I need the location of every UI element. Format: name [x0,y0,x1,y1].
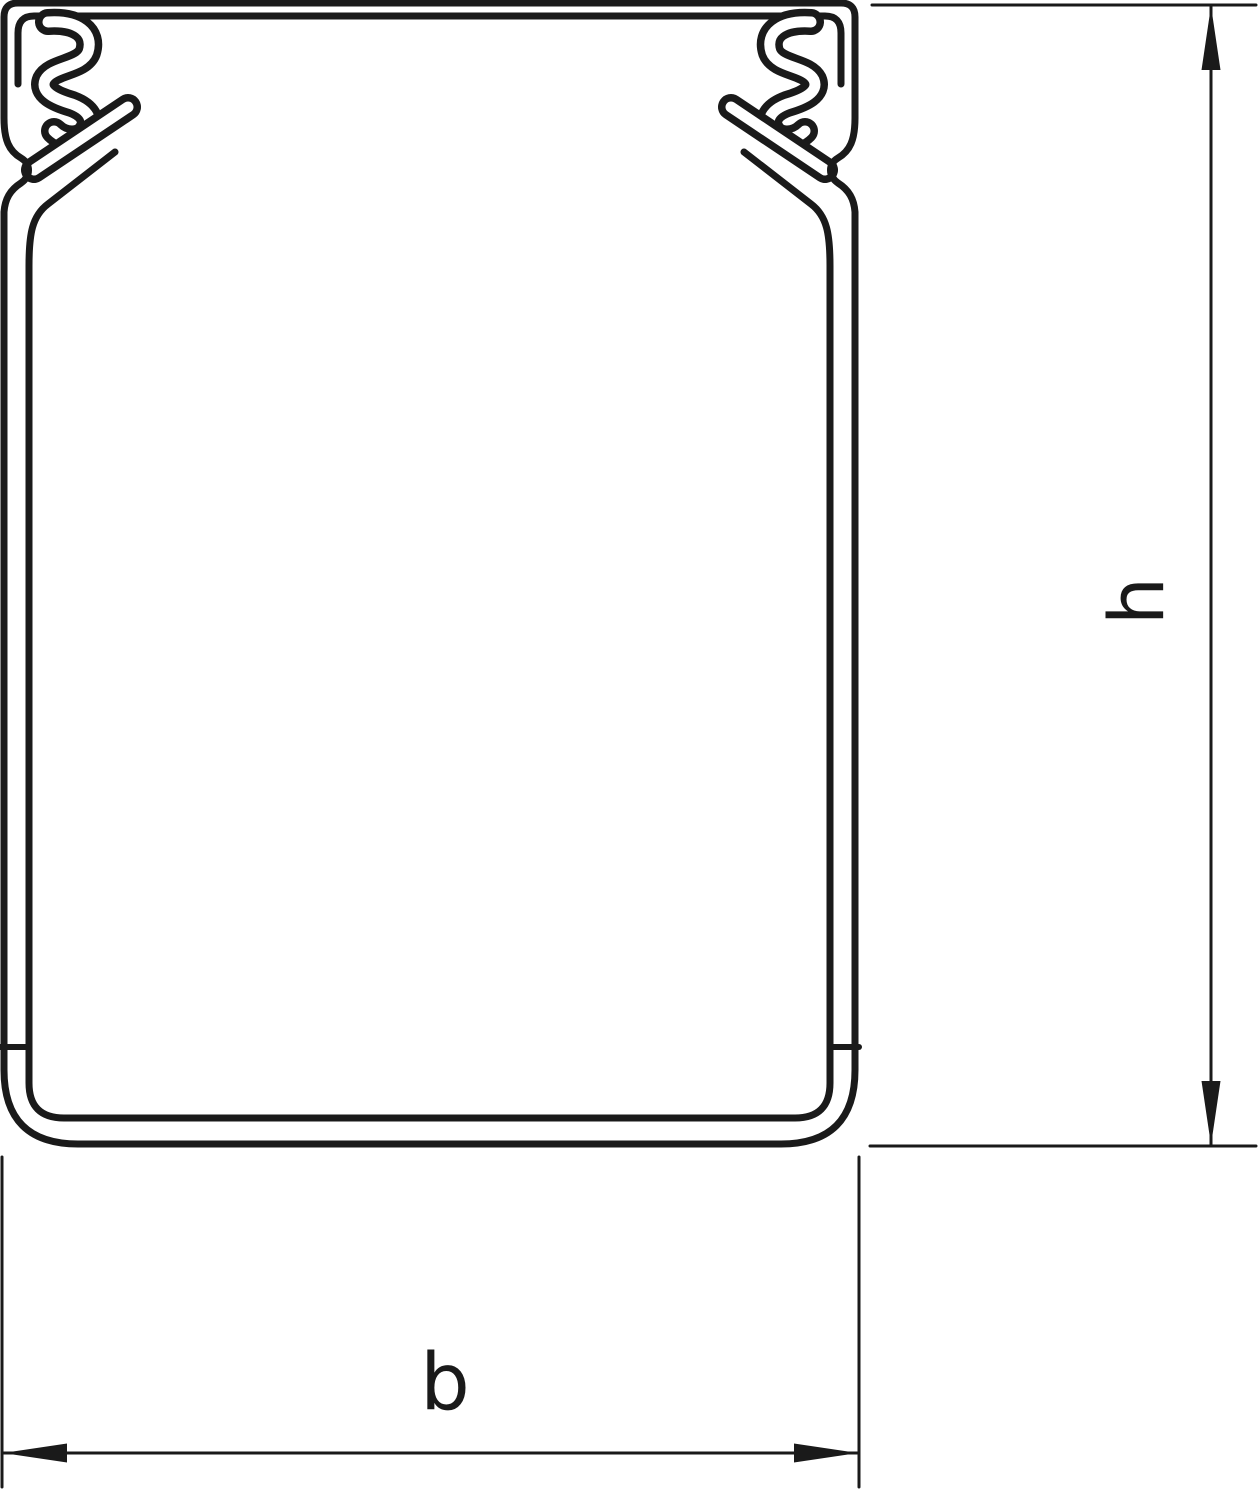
duct-profile [0,3,859,1144]
height-dimension: h [870,5,1256,1146]
width-label: b [420,1338,470,1428]
arrow-up-icon [1202,6,1221,70]
profile-right-half [429,3,859,1144]
height-label: h [1092,577,1181,625]
arrow-down-icon [1202,1081,1221,1145]
profile-left-half [0,3,430,1144]
inner-contour [29,152,430,1118]
outer-contour [4,3,430,1144]
technical-drawing: h b [0,0,1258,1500]
arrow-left-icon [3,1444,67,1463]
drawing-canvas: h b [0,0,1258,1500]
arrow-right-icon [794,1444,858,1463]
width-dimension: b [2,1157,859,1487]
